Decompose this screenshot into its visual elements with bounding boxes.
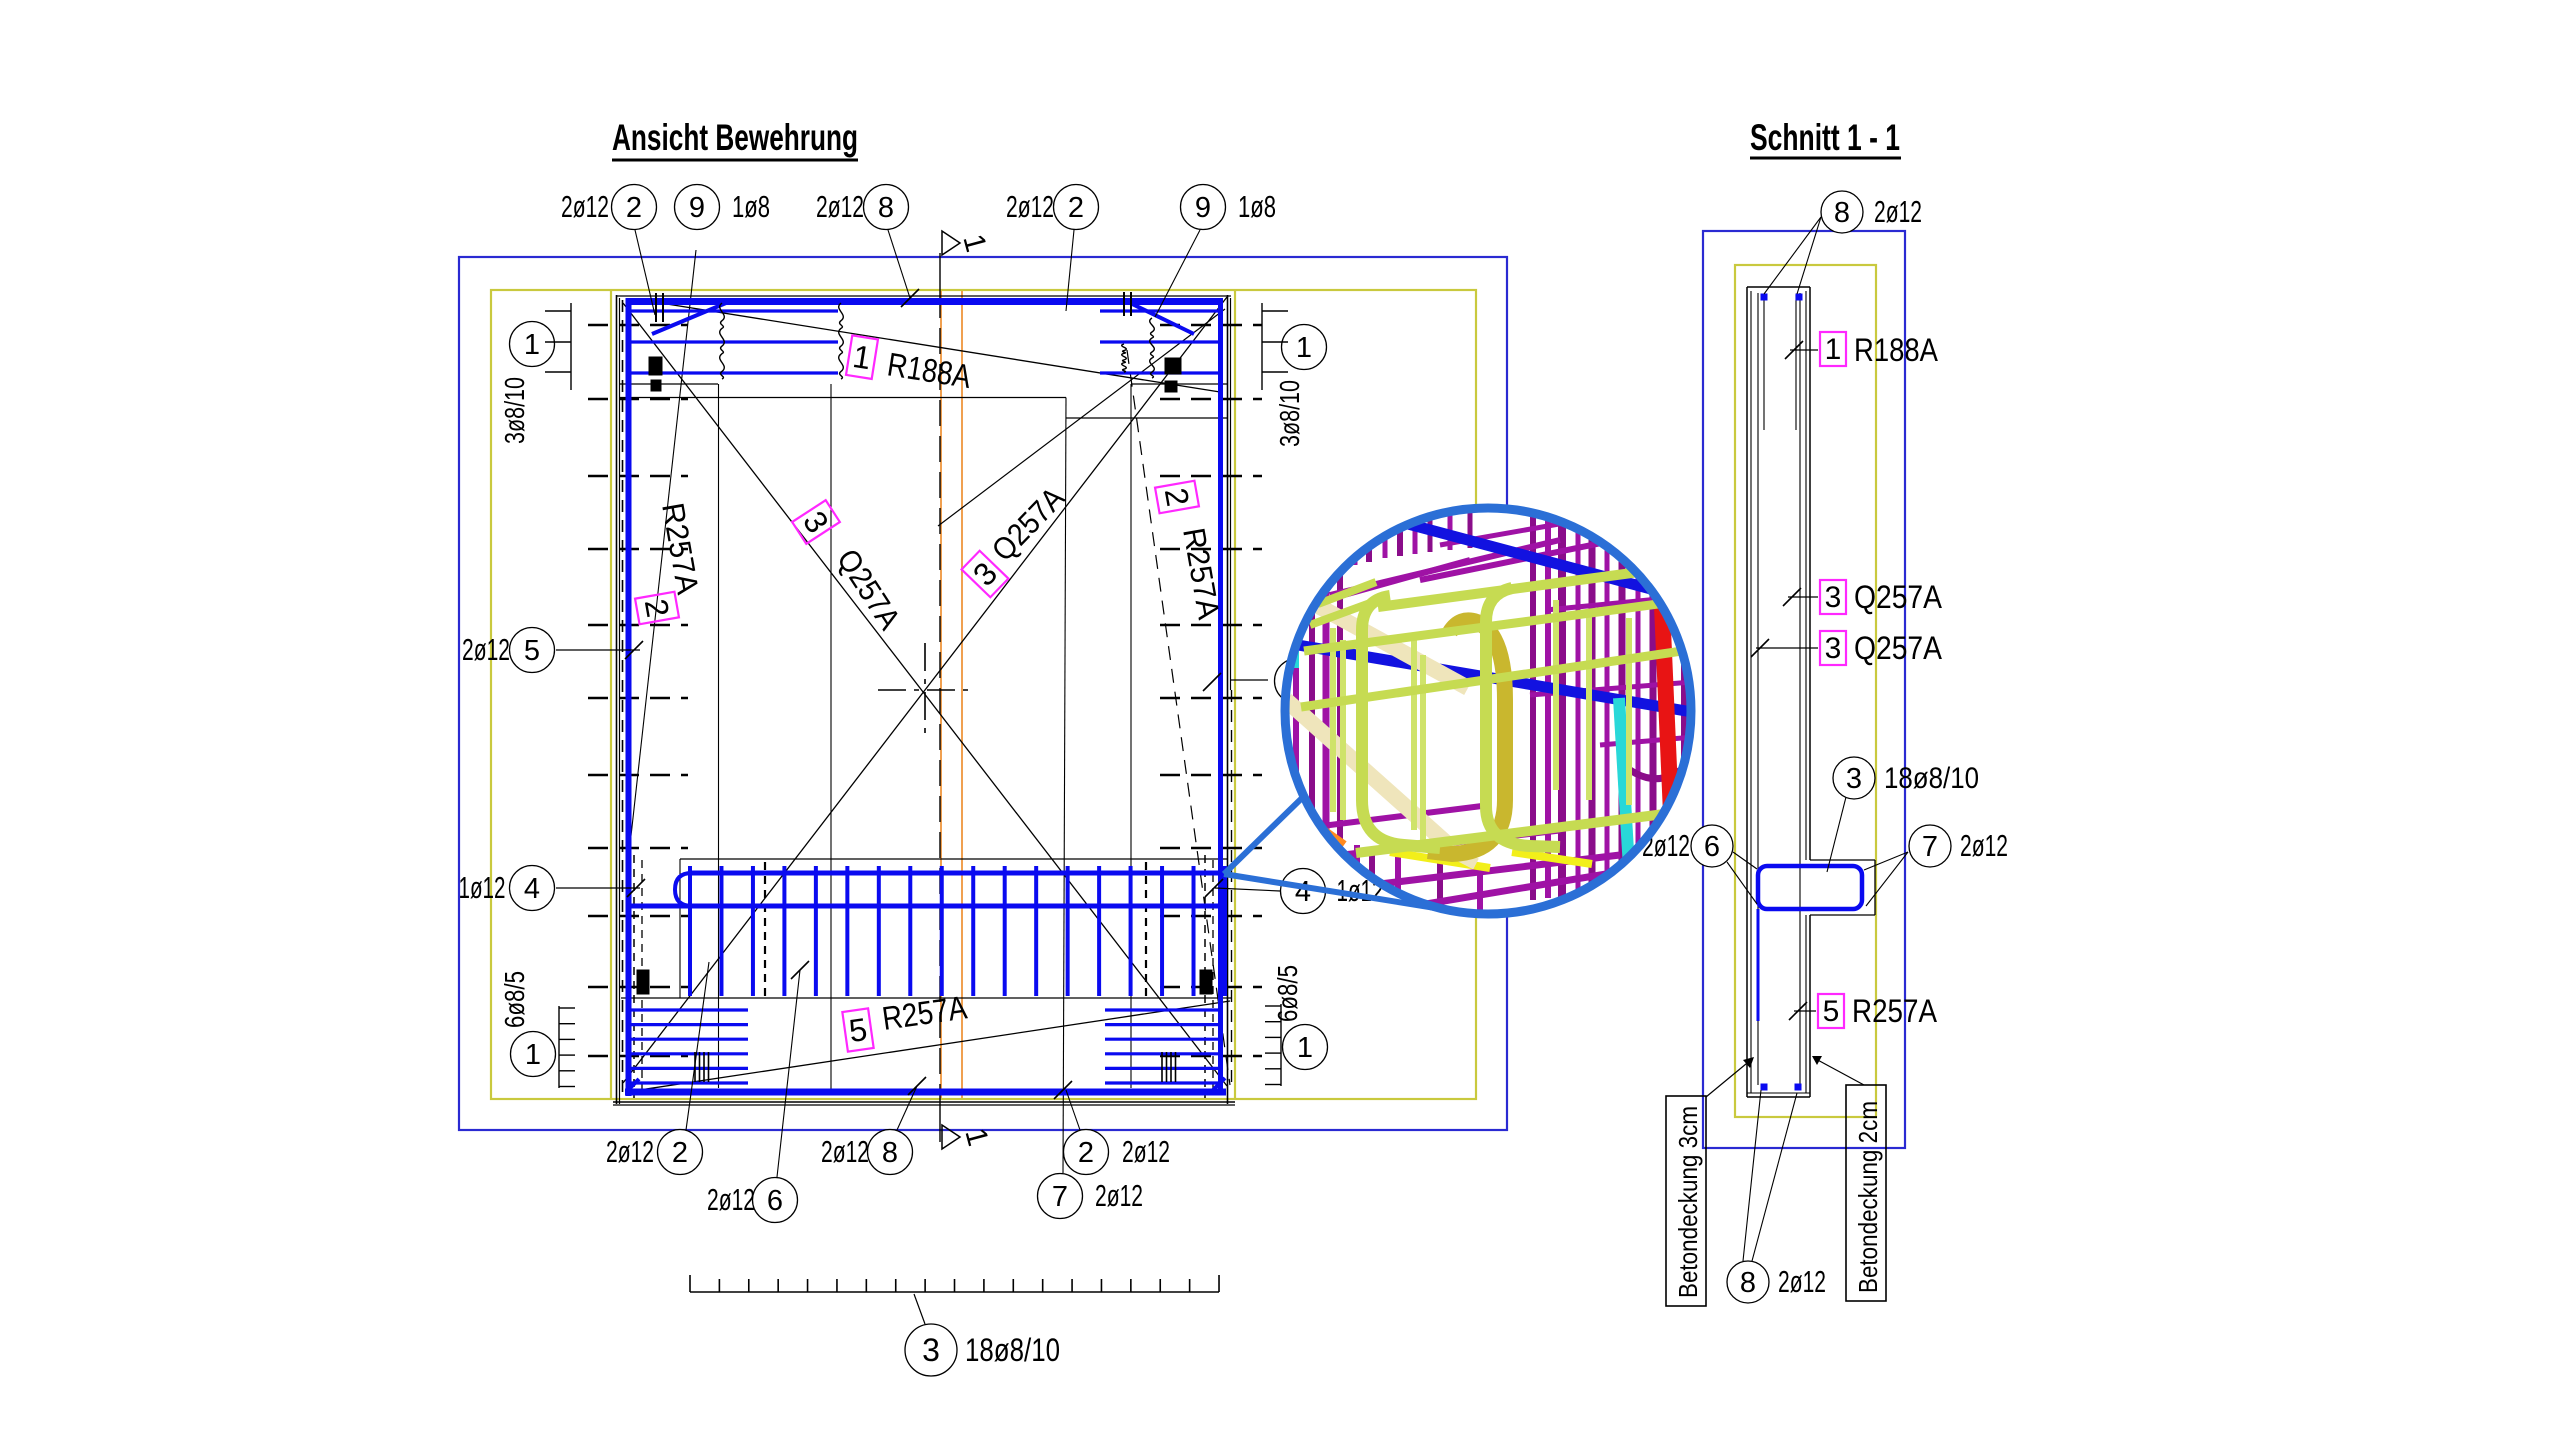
svg-text:6ø8/5: 6ø8/5 (499, 971, 530, 1028)
svg-text:3ø8/10: 3ø8/10 (499, 377, 530, 444)
svg-text:5: 5 (1823, 995, 1840, 1028)
svg-text:Betondeckung 3cm: Betondeckung 3cm (1673, 1106, 1703, 1298)
svg-text:2ø12: 2ø12 (462, 632, 510, 667)
svg-text:2ø12: 2ø12 (1874, 194, 1922, 229)
svg-text:2: 2 (626, 192, 642, 224)
svg-text:7: 7 (1052, 1181, 1068, 1213)
svg-text:R188A: R188A (1854, 332, 1939, 368)
svg-text:1: 1 (1297, 1032, 1313, 1064)
svg-text:3: 3 (1825, 581, 1842, 614)
svg-text:6ø8/5: 6ø8/5 (1272, 965, 1303, 1022)
svg-text:2ø12: 2ø12 (707, 1182, 755, 1217)
svg-text:2ø12: 2ø12 (816, 189, 864, 224)
svg-text:Q257A: Q257A (1854, 630, 1943, 666)
svg-text:1ø8: 1ø8 (732, 189, 770, 224)
svg-text:1: 1 (525, 1039, 541, 1071)
svg-text:6: 6 (767, 1185, 783, 1217)
svg-text:4: 4 (1295, 876, 1311, 908)
svg-text:2ø12: 2ø12 (606, 1134, 654, 1169)
svg-text:5: 5 (524, 635, 540, 667)
svg-text:2: 2 (1068, 192, 1084, 224)
svg-text:8: 8 (1834, 197, 1850, 229)
svg-text:18ø8/10: 18ø8/10 (1884, 762, 1979, 795)
svg-text:9: 9 (1195, 192, 1211, 224)
svg-text:3: 3 (1825, 632, 1842, 665)
svg-text:R257A: R257A (1852, 993, 1938, 1029)
svg-text:Schnitt 1 - 1: Schnitt 1 - 1 (1750, 117, 1900, 158)
svg-text:2ø12: 2ø12 (561, 189, 609, 224)
svg-text:8: 8 (882, 1137, 898, 1169)
svg-text:8: 8 (878, 192, 894, 224)
svg-text:9: 9 (689, 192, 705, 224)
svg-text:2ø12: 2ø12 (1778, 1264, 1826, 1299)
svg-text:3: 3 (922, 1332, 940, 1368)
svg-text:1: 1 (524, 329, 540, 361)
svg-text:2: 2 (672, 1137, 688, 1169)
svg-text:18ø8/10: 18ø8/10 (965, 1332, 1060, 1368)
svg-text:Q257A: Q257A (1854, 579, 1943, 615)
svg-text:Betondeckung 2cm: Betondeckung 2cm (1853, 1101, 1883, 1293)
svg-text:2: 2 (1078, 1137, 1094, 1169)
svg-text:3: 3 (1846, 763, 1862, 795)
svg-text:1ø12: 1ø12 (459, 870, 506, 905)
svg-text:4: 4 (524, 873, 540, 905)
svg-text:2ø12: 2ø12 (1095, 1178, 1143, 1213)
svg-text:1: 1 (1825, 333, 1842, 366)
svg-text:6: 6 (1704, 831, 1720, 863)
svg-text:1ø8: 1ø8 (1238, 189, 1276, 224)
svg-text:2ø12: 2ø12 (821, 1134, 869, 1169)
svg-text:7: 7 (1922, 831, 1938, 863)
svg-text:2ø12: 2ø12 (1006, 189, 1054, 224)
svg-text:2ø12: 2ø12 (1960, 828, 2008, 863)
svg-text:1: 1 (1296, 332, 1312, 364)
svg-text:8: 8 (1740, 1267, 1756, 1299)
svg-text:3ø8/10: 3ø8/10 (1274, 380, 1305, 447)
svg-text:2ø12: 2ø12 (1122, 1134, 1170, 1169)
svg-text:Ansicht Bewehrung: Ansicht Bewehrung (612, 117, 858, 158)
